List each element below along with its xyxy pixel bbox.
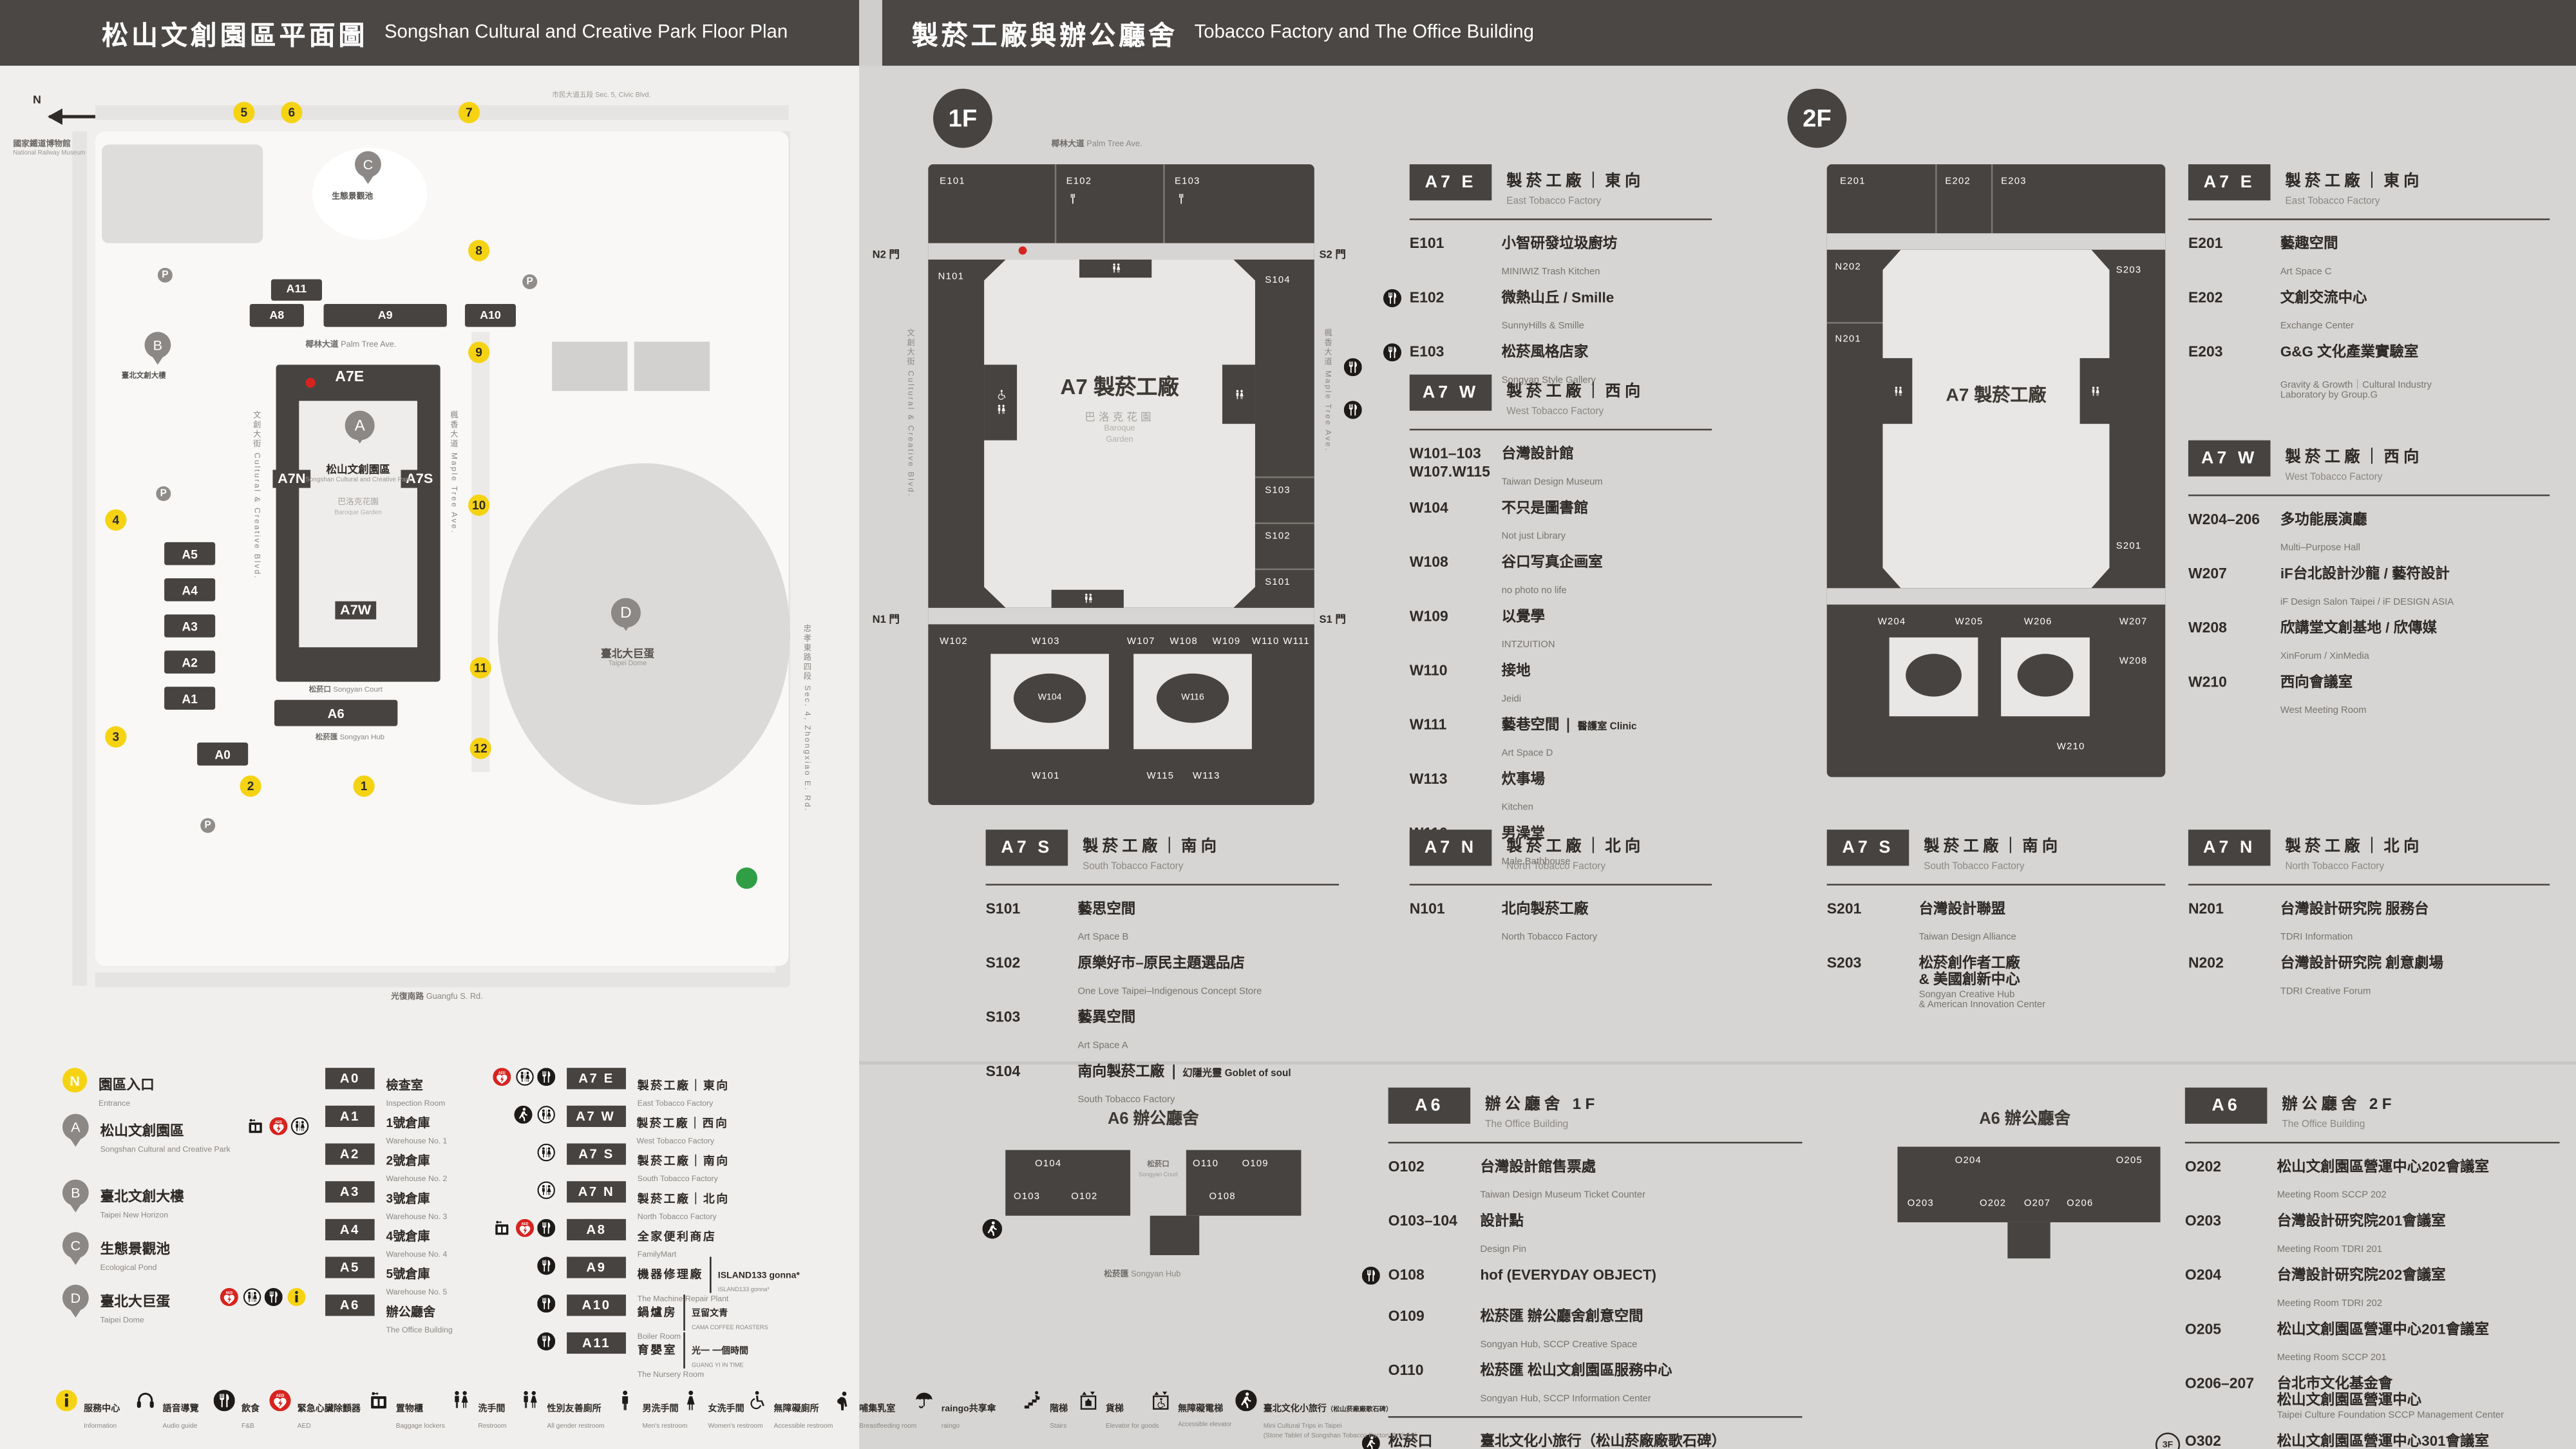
garden-label-zh: 巴洛克花園 [299,496,417,507]
food-icon [265,1288,283,1306]
room-row: W108谷口写真企画室no photo no life [1410,554,1712,596]
restroom-icon [242,1288,260,1306]
garden-label-en: Baroque Garden [299,507,417,516]
section-1f-north: A7 N 製菸工廠｜北向 North Tobacco Factory N101北… [1410,829,1712,954]
parking-icon: P [522,274,537,289]
room-row: E201藝趣空間Art Space C [2188,235,2550,278]
room-row: W204–206多功能展演廳Multi–Purpose Hall [2188,511,2550,553]
d2-oval [2018,654,2074,696]
legend-a5: A55號倉庫Warehouse No. 5 [325,1257,447,1298]
restroom-icon [536,1106,554,1124]
parking-icon: P [156,486,171,501]
d1-room: W102 [940,638,968,647]
facility-raingo: raingo共享傘raingo [913,1390,996,1429]
section-badge: A7 E [1410,164,1492,200]
food-icon [1344,358,1362,376]
d1-room: S103 [1265,486,1291,496]
legend-a6: A6辦公廳舍The Office Building [325,1294,453,1336]
d2-room: W210 [2057,743,2085,752]
room-row: W207iF台北設計沙龍 / 藝符設計iF Design Salon Taipe… [2188,565,2550,608]
neighbor-block [552,342,627,392]
section-title-zh: 製菸工廠｜北向 [1506,838,1644,856]
taipei-dome-shape [498,463,790,805]
map-block-a11: A11 [271,279,322,301]
o1-room: O110 [1193,1160,1218,1170]
entrance-number: 12 [470,737,491,759]
map-label-a7w: A7W [335,601,375,620]
room-row: S201台灣設計聯盟Taiwan Design Alliance [1827,900,2166,943]
legend-place-d: D 臺北大巨蛋Taipei Dome [62,1285,170,1326]
section-1f-west: A7 W 製菸工廠｜西向 West Tobacco Factory W101–1… [1410,375,1712,879]
o2-room: O205 [2116,1157,2143,1166]
d2-divider [1935,164,1937,233]
restroom-icon [291,1117,309,1135]
food-icon [1383,289,1401,307]
room-row: 3F O302松山文創園區營運中心301會議室Meeting Room SCCP… [2185,1433,2560,1449]
food-icon [537,1068,555,1086]
room-row: W109以覺學INTZUITION [1410,608,1712,650]
d2-courtyard [1882,250,2109,589]
court-row: 松菸口Songyan Court 臺北文化小旅行（松山菸廠廠歌石碑）Mini C… [1388,1432,1803,1449]
d2-room: W206 [2024,618,2052,627]
section-title-en: West Tobacco Factory [2285,473,2423,483]
d1-garden-en2: Garden [984,435,1255,445]
entrance-number: 8 [468,240,489,261]
facility-breastfeeding: 哺集乳室Breastfeeding room [831,1390,916,1429]
o1-room: O102 [1071,1193,1097,1202]
header-left-title-zh: 松山文創園區平面圖 [102,13,368,52]
accessible-elevator-icon [1150,1390,1171,1411]
d1-room: E103 [1175,178,1200,187]
d2-room: S201 [2116,542,2142,552]
all-gender-restroom-icon [519,1390,540,1411]
section-1f-south: A7 S 製菸工廠｜南向 South Tobacco Factory S101藝… [986,829,1339,1117]
o2-stub [2007,1222,2050,1258]
section-title-en: East Tobacco Factory [1506,197,1644,207]
cultural-blvd-label: 文創大街 Cultural & Creative Blvd. [250,411,261,608]
room-row: O109松菸匯 辦公廳舍創意空間Songyan Hub, SCCP Creati… [1388,1308,1803,1350]
section-office-2f: A6 辦公廳舍 2F The Office Building O202松山文創園… [2185,1088,2560,1449]
pin-a: A [345,411,375,440]
d1-room: W108 [1170,638,1198,647]
row-icons [537,1181,555,1222]
d1-stair-tab [1052,590,1124,608]
legend-a11: A11 育嬰室光一 一個時間GUANG YI IN TIMEThe Nurser… [537,1332,748,1381]
room-row: W110接地Jeidi [1410,662,1712,705]
section-badge: A6 [1388,1088,1471,1124]
legend-a7e: A7 E 製菸工廠｜東向East Tobacco Factory [493,1068,729,1109]
d1-garden-en1: Baroque [984,424,1255,433]
pond-label: 生態景觀池 [332,191,373,202]
maple-ave-label: 楓香大道 Maple Tree Ave. [447,411,459,608]
section-badge: A7 E [2188,164,2271,200]
section-badge: A7 N [2188,829,2271,866]
pin-c: C [355,151,381,178]
section-title-en: The Office Building [2282,1121,2396,1130]
map-block-a9: A9 [324,304,447,327]
room-row: W104不只是圖書館Not just Library [1410,500,1712,542]
room-row: W111藝巷空間醫護室 ClinicArt Space D [1410,716,1712,759]
inner-lane [471,332,489,772]
d2-room: W207 [2119,618,2148,627]
row-icons [493,1219,555,1260]
d2-room: S203 [2116,266,2142,276]
hub-label: 松菸匯 Songyan Hub [316,733,384,743]
food-icon [1344,401,1362,419]
d1-center-title: A7 製菸工廠 [984,370,1255,401]
section-badge: A7 W [1410,375,1492,411]
facility-accessible: 無障礙廁所Accessible restroom [746,1390,833,1429]
d2-stair-tab [1882,358,1912,424]
restroom-icon [1233,388,1245,400]
breastfeeding-icon [831,1390,853,1411]
d1-stair-tab [1079,260,1151,278]
compass-label: N [33,95,41,107]
gate-s2: S2 門 [1319,245,1345,261]
section-1f-east: A7 E 製菸工廠｜東向 East Tobacco Factory E101小智… [1410,164,1712,397]
o2-diagram-title: A6 辦公廳舍 [1889,1104,2161,1128]
room-row: E202文創交流中心Exchange Center [2188,289,2550,332]
food-icon [1362,1267,1380,1285]
section-title-zh: 製菸工廠｜北向 [2285,838,2423,856]
d1-room: N101 [938,272,964,282]
entrance-number: 2 [240,775,261,797]
section-title-en: The Office Building [1485,1121,1599,1130]
info-icon [287,1288,305,1306]
d1-lane [928,608,1314,625]
facility-lockers: 置物櫃Baggage lockers [368,1390,444,1429]
section-title-en: North Tobacco Factory [2285,862,2423,872]
legend-entrance: N 園區入口Entrance [62,1068,155,1109]
d1-room-oval: W116 [1157,674,1229,723]
d1-garden-zh: 巴洛克花園 [984,408,1255,424]
map-block-a4: A4 [164,578,215,601]
section-title-en: West Tobacco Factory [1506,408,1644,417]
walk-icon [983,1219,1003,1239]
o2-room: O203 [1908,1199,1934,1209]
room-row: E101小智研發垃圾廚坊MINIWIZ Trash Kitchen [1410,235,1712,278]
header-left: 松山文創園區平面圖 Songshan Cultural and Creative… [0,0,859,66]
legend-place-a: A 松山文創園區Songshan Cultural and Creative P… [62,1114,245,1155]
parking-icon: P [158,268,173,283]
header-gap [859,0,882,66]
aed-icon [269,1390,290,1411]
d1-divider [1055,164,1057,243]
aed-icon [493,1068,511,1086]
entrance-marker-icon: N [62,1068,87,1092]
d1-street-top: 椰林大道 Palm Tree Ave. [1052,138,1142,149]
room-row: O205松山文創園區營運中心201會議室Meeting Room SCCP 20… [2185,1321,2560,1363]
room-row: O202松山文創園區營運中心202會議室Meeting Room SCCP 20… [2185,1158,2560,1200]
map-block-a10: A10 [465,304,516,327]
section-title-zh: 製菸工廠｜南向 [1924,838,2061,856]
facility-goods-elevator: 貨梯Elevator for goods [1077,1390,1159,1429]
entrance-number: 5 [233,102,254,123]
aed-icon [269,1117,287,1135]
header-right-title-zh: 製菸工廠與辦公廳舍 [912,13,1178,52]
section-title-en: East Tobacco Factory [2285,197,2423,207]
header-right: 製菸工廠與辦公廳舍 Tobacco Factory and The Office… [882,0,2576,66]
map-block-a5: A5 [164,542,215,565]
restroom-icon [515,1068,533,1086]
d2-room: N201 [1835,335,1861,345]
d2-room: W204 [1878,618,1906,627]
room-row: N201台灣設計研究院 服務台TDRI Information [2188,900,2550,943]
park-name-zh: 松山文創園區 [299,460,417,477]
section-badge: A6 [2185,1088,2268,1124]
room-row: W113炊事場Kitchen [1410,770,1712,813]
facility-all-gender: 性別友善廁所All gender restroom [519,1390,604,1429]
o1-diagram-title: A6 辦公廳舍 [1005,1104,1301,1128]
pin-d: D [611,598,641,628]
d1-room: W109 [1213,638,1241,647]
d1-street-right: 楓香大道 Maple Tree Ave. [1321,328,1332,558]
restroom-icon [450,1390,471,1411]
facility-audio: 語音導覽Audio guide [135,1390,199,1429]
d1-room: W113 [1193,772,1220,782]
legend-a8: A8 全家便利商店FamilyMart [493,1219,716,1260]
legend-a1: A11號倉庫Warehouse No. 1 [325,1106,447,1147]
umbrella-icon [913,1390,934,1411]
map-block-a2: A2 [164,650,215,674]
o1-room: O108 [1209,1193,1236,1202]
room-row: W101–103W107.W115台灣設計館Taiwan Design Muse… [1410,445,1712,488]
header-right-title-en: Tobacco Factory and The Office Building [1195,23,1534,43]
o1-court-zh: 松菸口 [1133,1160,1183,1170]
pin-b: B [144,332,171,358]
court-label: 松菸口 Songyan Court [309,685,383,695]
entrance-number: 4 [105,509,126,531]
pin-icon: A [62,1114,89,1141]
room-row: O206–207台北市文化基金會 松山文創園區營運中心Taipei Cultur… [2185,1375,2560,1421]
d2-lane [1827,588,2166,605]
d1-room: W101 [1032,772,1060,782]
road-guangfu [95,972,789,987]
room-row: O108hof (EVERYDAY OBJECT) [1388,1267,1803,1296]
section-badge: A7 S [1827,829,1909,866]
d1-room: W107 [1127,638,1155,647]
facility-info: 服務中心Information [56,1390,120,1429]
d1-room: S101 [1265,578,1291,588]
d2-room: W205 [1955,618,1984,627]
wheelchair-icon [995,390,1007,401]
park-name-en: Songshan Cultural and Creative Park [296,475,421,483]
food-icon [1383,343,1401,361]
locker-icon [368,1390,389,1411]
section-title-zh: 辦公廳舍 2F [2282,1096,2396,1114]
d1-divider [1255,477,1314,478]
locker-icon [493,1219,511,1237]
road-left [72,131,87,986]
d2-room: E201 [1840,178,1866,187]
d1-room-oval: W104 [1014,674,1086,723]
d2-center-title: A7 製菸工廠 [1882,381,2109,408]
food-icon [214,1390,235,1411]
map-label-a7e: A7E [335,368,364,384]
gate-s1: S1 門 [1319,609,1345,626]
o1-hub-label: 松菸匯 Songyan Hub [1104,1268,1180,1280]
neighbor-block [634,342,710,392]
section-2f-east: A7 E 製菸工廠｜東向 East Tobacco Factory E201藝趣… [2188,164,2550,412]
o1-room: O104 [1035,1160,1061,1170]
section-badge: A7 S [986,829,1068,866]
legend-a7s: A7 S 製菸工廠｜南向South Tobacco Factory [537,1144,729,1185]
d1-divider [1255,569,1314,571]
section-title-zh: 製菸工廠｜東向 [2285,173,2423,191]
legend-a7n: A7 N 製菸工廠｜北向North Tobacco Factory [537,1181,729,1222]
d2-room: N202 [1835,263,1861,272]
section-badge: A7 N [1410,829,1492,866]
o2-room: O202 [1980,1199,2006,1209]
restroom-icon [1082,593,1094,605]
room-row: N101北向製菸工廠North Tobacco Factory [1410,900,1712,943]
room-row: S203松菸創作者工廠 & 美國創新中心Songyan Creative Hub… [1827,954,2166,1010]
road-zhongxiao-label: 忠孝東路四段 Sec. 4, Zhongxiao E. Rd. [800,624,811,871]
wheelchair-icon [746,1390,767,1411]
section-office-1f: A6 辦公廳舍 1F The Office Building O102台灣設計館… [1388,1088,1803,1449]
restroom-icon [537,1181,555,1199]
o1-room: O109 [1242,1160,1269,1170]
legend-d-icons [220,1288,305,1306]
row-icons [537,1332,555,1381]
legend-place-b: B 臺北文創大樓Taipei New Horizon [62,1180,184,1221]
row-icons [514,1106,554,1147]
entrance-number: 7 [459,102,480,123]
pin-icon: C [62,1232,89,1258]
d1-divider [1163,164,1165,243]
legend-a-icons [247,1117,309,1135]
restroom-icon [537,1144,555,1162]
pin-icon: D [62,1285,89,1311]
room-row: N202台灣設計研究院 創意劇場TDRI Creative Forum [2188,954,2550,997]
womens-restroom-icon [680,1390,701,1411]
mens-restroom-icon [614,1390,636,1411]
d1-stair-tab [984,365,1017,440]
header-left-title-en: Songshan Cultural and Creative Park Floo… [384,23,788,43]
dome-label-zh: 臺北大巨蛋 [578,644,677,661]
d2-oval [1906,654,1962,696]
restroom-icon [2089,385,2101,397]
o2-room: O204 [1955,1157,1982,1166]
aed-dot-icon [305,378,315,388]
d2-divider [1827,322,1883,324]
food-icon [537,1332,555,1350]
entrance-number: 1 [353,775,374,797]
pin-icon: B [62,1180,89,1206]
map-block-a0: A0 [197,743,248,766]
facility-accessible-elevator: 無障礙電梯Accessible elevator [1150,1390,1232,1428]
road-civic-label: 市民大道五段 Sec. 5, Civic Blvd. [552,90,650,100]
d1-stair-tab [1222,365,1255,424]
legend-a3: A33號倉庫Warehouse No. 3 [325,1181,447,1222]
road-guangfu-label: 光復南路 Guangfu S. Rd. [391,990,483,1002]
legend-a4: A44號倉庫Warehouse No. 4 [325,1219,447,1260]
aed-icon [220,1288,238,1306]
facility-stairs: 階梯Stairs [1022,1390,1068,1429]
d1-room: W110 [1252,638,1280,647]
room-row: S102原樂好市–原民主題選品店One Love Taipei–Indigeno… [986,954,1339,997]
legend-a2: A22號倉庫Warehouse No. 2 [325,1144,447,1185]
legend-a0: A0檢查室Inspection Room [325,1068,445,1109]
o1-building [1005,1150,1130,1216]
walk-icon [514,1106,532,1124]
room-row: O203台灣設計研究院201會議室Meeting Room TDRI 201 [2185,1213,2560,1255]
railway-museum-block [102,144,263,243]
walk-icon [1235,1390,1256,1411]
room-row: S103藝異空間Art Space A [986,1009,1339,1051]
d1-room: W103 [1032,638,1060,647]
d1-room: S102 [1265,533,1291,542]
d2-stair-tab [2080,358,2110,424]
floor-1f-badge: 1F [933,89,992,148]
restroom-icon [995,404,1007,416]
food-icon [1175,192,1188,205]
food-icon [537,1219,555,1237]
o1-stub [1150,1216,1200,1255]
section-title-zh: 製菸工廠｜西向 [1506,383,1644,401]
entrance-number: 6 [281,102,302,123]
map-block-a6: A6 [274,700,397,726]
d2-room: E203 [2001,178,2027,187]
goods-elevator-icon [1077,1390,1099,1411]
facility-aed: 緊急心臟除顫器AED [269,1390,361,1429]
room-row: E203G&G 文化產業實驗室Gravity & Growth｜Cultural… [2188,343,2550,401]
gate-n2: N2 門 [873,245,900,261]
o2-room: O207 [2024,1199,2050,1209]
info-icon [56,1390,77,1411]
section-title-zh: 製菸工廠｜東向 [1506,173,1644,191]
section-title-zh: 製菸工廠｜南向 [1083,838,1220,856]
aed-icon [515,1219,533,1237]
room-row: O102台灣設計館售票處Taiwan Design Museum Ticket … [1388,1158,1803,1200]
map-block-a8: A8 [250,304,304,327]
section-2f-west: A7 W 製菸工廠｜西向 West Tobacco Factory W204–2… [2188,440,2550,728]
entrance-number: 11 [470,657,491,678]
entrance-number: 3 [105,726,126,748]
d1-street-left: 文創大街 Cultural & Creative Blvd. [904,328,915,558]
room-row: S104南向製菸工廠幻隱光靈 Goblet of soulSouth Tobac… [986,1063,1339,1106]
floor-2f-badge: 2F [1788,89,1847,148]
d1-divider [1255,522,1314,524]
facility-restroom: 洗手間Restroom [450,1390,507,1429]
locker-icon [247,1117,265,1135]
new-horizon-label: 臺北文創大樓 [122,372,166,381]
parking-icon: P [200,818,215,833]
d1-room: E102 [1066,178,1092,187]
facility-fnb: 飲食F&B [214,1390,260,1429]
aed-dot-icon [1019,247,1027,255]
d1-room: W115 [1147,772,1175,782]
room-row: W208欣講堂文創基地 / 欣傳媒XinForum / XinMedia [2188,620,2550,662]
room-row: O103–104設計點Design Pin [1388,1213,1803,1255]
park-map: N 市民大道五段 Sec. 5, Civic Blvd. 光復南路 Guangf… [0,66,859,1065]
section-title-en: South Tobacco Factory [1924,862,2061,872]
entrance-number: 9 [468,342,489,363]
section-title-en: North Tobacco Factory [1506,862,1644,872]
o1-room: O103 [1014,1193,1040,1202]
map-block-a1: A1 [164,687,215,710]
green-landmark-icon [736,867,757,889]
o2-room: O206 [2067,1199,2093,1209]
legend-a7w: A7 W 製菸工廠｜西向West Tobacco Factory [514,1106,728,1147]
railway-museum-label-en: National Railway Museum [13,149,85,156]
food-icon [537,1257,555,1275]
row-icons [493,1068,555,1109]
d1-room: E101 [940,178,965,187]
food-icon [537,1294,555,1312]
d1-room: W111 [1283,638,1310,647]
railway-museum-label-zh: 國家鐵道博物館 [13,138,70,149]
